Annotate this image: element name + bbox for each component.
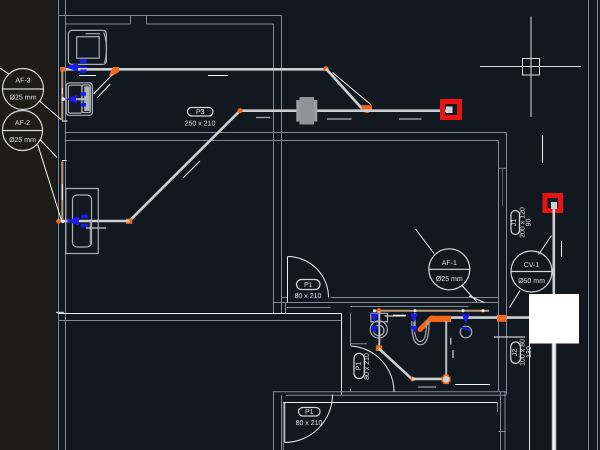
svg-text:80 x 210: 80 x 210 (364, 353, 371, 380)
svg-text:AF-3: AF-3 (15, 78, 30, 85)
svg-text:80 x 210: 80 x 210 (295, 293, 322, 300)
svg-text:Ø25 mm: Ø25 mm (436, 275, 463, 283)
svg-text:J1: J1 (511, 219, 518, 227)
svg-text:250 x 210: 250 x 210 (185, 120, 216, 127)
svg-text:Ø50 mm: Ø50 mm (518, 277, 545, 285)
svg-text:90: 90 (525, 219, 532, 227)
svg-text:Ø25 mm: Ø25 mm (10, 94, 37, 102)
svg-text:CV-1: CV-1 (524, 262, 540, 269)
svg-text:AF-2: AF-2 (15, 120, 30, 127)
svg-text:P3: P3 (196, 109, 205, 116)
svg-text:P1: P1 (304, 282, 313, 289)
svg-text:P1: P1 (305, 409, 314, 416)
svg-text:Ø25 mm: Ø25 mm (9, 136, 36, 144)
svg-text:P1: P1 (356, 362, 363, 371)
svg-text:J2: J2 (512, 349, 519, 357)
svg-text:130: 130 (526, 346, 533, 358)
svg-text:AF-1: AF-1 (442, 260, 457, 267)
svg-text:80 x 210: 80 x 210 (296, 420, 323, 427)
